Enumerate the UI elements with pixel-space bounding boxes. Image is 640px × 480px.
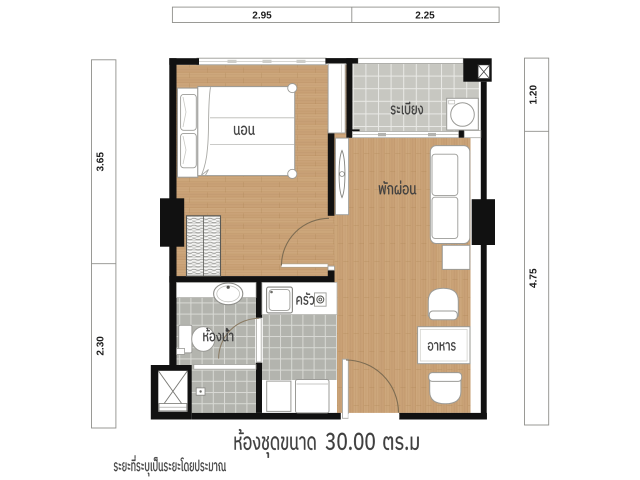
svg-text:1.20: 1.20 xyxy=(529,85,540,105)
svg-text:3.65: 3.65 xyxy=(96,152,107,172)
svg-text:4.75: 4.75 xyxy=(529,268,540,288)
svg-text:2.25: 2.25 xyxy=(415,11,435,22)
svg-text:2.30: 2.30 xyxy=(96,336,107,356)
svg-text:2.95: 2.95 xyxy=(252,11,272,22)
